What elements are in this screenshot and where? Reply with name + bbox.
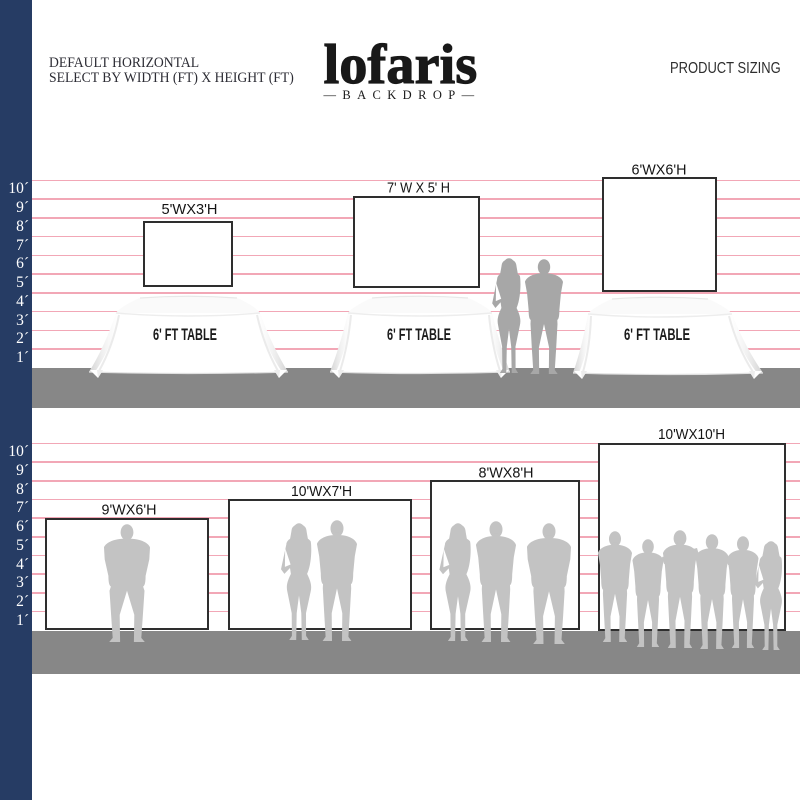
svg-text:10'WX7'H: 10'WX7'H — [291, 483, 352, 500]
svg-text:7' W X 5' H: 7' W X 5' H — [387, 180, 450, 197]
svg-text:10'WX10'H: 10'WX10'H — [658, 426, 725, 443]
svg-text:6' FT TABLE: 6' FT TABLE — [153, 326, 217, 344]
svg-text:6' FT TABLE: 6' FT TABLE — [624, 326, 690, 344]
svg-text:9'WX6'H: 9'WX6'H — [102, 502, 157, 519]
svg-text:8'WX8'H: 8'WX8'H — [479, 465, 534, 482]
svg-text:6' FT TABLE: 6' FT TABLE — [387, 326, 451, 344]
svg-text:6'WX6'H: 6'WX6'H — [632, 162, 687, 179]
svg-text:5'WX3'H: 5'WX3'H — [162, 201, 218, 218]
